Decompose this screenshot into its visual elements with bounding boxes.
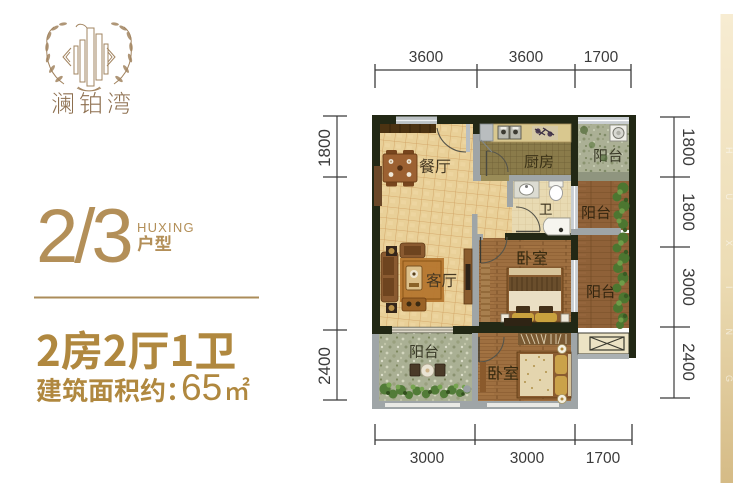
svg-text:1800: 1800 xyxy=(315,129,334,167)
svg-text:1700: 1700 xyxy=(586,450,621,467)
svg-text:1800: 1800 xyxy=(679,128,698,166)
svg-text:1700: 1700 xyxy=(584,49,619,66)
svg-text:3000: 3000 xyxy=(510,450,545,467)
svg-text:3000: 3000 xyxy=(410,450,445,467)
svg-text:3600: 3600 xyxy=(409,49,444,66)
svg-text:2400: 2400 xyxy=(315,347,334,385)
svg-text:3600: 3600 xyxy=(509,49,544,66)
svg-text:65: 65 xyxy=(181,367,222,408)
svg-text:HUXING: HUXING xyxy=(137,220,195,235)
svg-text:HUXING: HUXING xyxy=(724,147,734,422)
svg-text:1800: 1800 xyxy=(679,193,698,231)
svg-text:2400: 2400 xyxy=(679,343,698,381)
svg-text:3000: 3000 xyxy=(679,268,698,306)
svg-text:2/3: 2/3 xyxy=(36,194,130,279)
